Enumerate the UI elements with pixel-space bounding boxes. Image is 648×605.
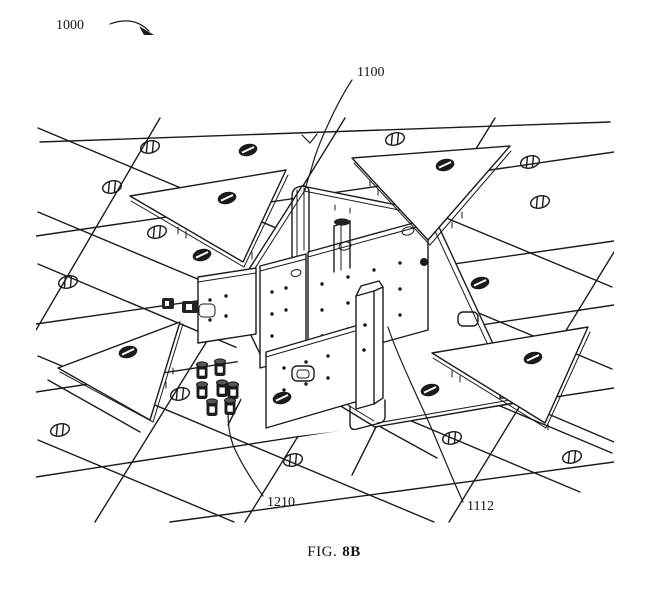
patent-figure-page: 1000 1100 1210 1112 FIG.8B xyxy=(0,0,648,605)
arrowhead-icon xyxy=(139,26,154,35)
label-1112: 1112 xyxy=(467,499,494,514)
leader-1100 xyxy=(305,80,352,190)
label-1100: 1100 xyxy=(357,65,384,80)
label-1000: 1000 xyxy=(56,18,84,33)
raised-plate-bottom-left xyxy=(48,322,183,432)
patent-drawing-svg: 1000 1100 1210 1112 FIG.8B xyxy=(0,0,648,605)
label-1210: 1210 xyxy=(267,495,295,510)
spacer-cylinders xyxy=(197,359,239,416)
check-mark-icon xyxy=(302,134,317,143)
figure-caption: FIG.8B xyxy=(307,544,360,560)
wall-left xyxy=(198,268,256,343)
